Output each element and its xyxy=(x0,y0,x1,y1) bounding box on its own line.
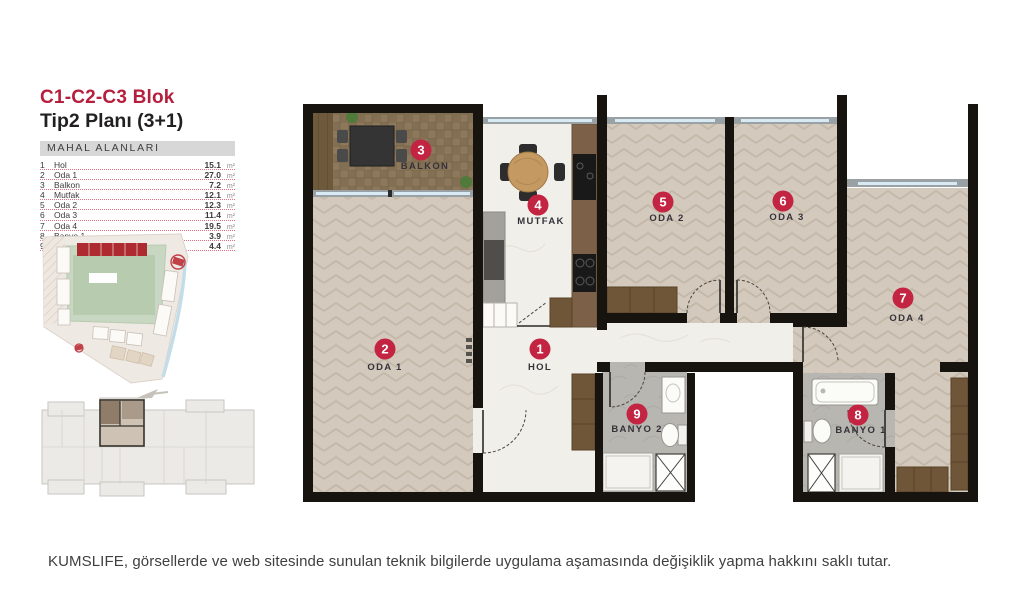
row-value: 4.4 xyxy=(209,242,221,250)
row-name: Oda 4 xyxy=(54,222,204,230)
kitchen-tall-cabinet xyxy=(550,298,572,327)
oda2-window xyxy=(607,117,725,124)
highlighted-block-row xyxy=(77,243,147,256)
toilet-tank xyxy=(678,425,687,445)
room-name: BANYO 2 xyxy=(611,424,662,435)
shower xyxy=(839,454,883,492)
room-number: 1 xyxy=(536,342,543,357)
row-name: Oda 1 xyxy=(54,171,204,179)
toilet-tank xyxy=(804,421,812,442)
hall-cabinet xyxy=(572,374,595,450)
site-plan-thumbnail xyxy=(35,231,207,392)
hall-arm-floor xyxy=(597,323,793,362)
row-value: 11.4 xyxy=(205,211,221,219)
row-value: 15.1 xyxy=(204,161,221,169)
room-number: 4 xyxy=(534,198,542,213)
row-unit: m² xyxy=(221,163,235,171)
table-row: 4Mutfak12.1m² xyxy=(40,190,235,200)
kitchen-window xyxy=(483,117,597,124)
row-value: 7.2 xyxy=(209,181,221,189)
room-number: 5 xyxy=(659,195,666,210)
plant-icon xyxy=(460,176,472,188)
row-no: 5 xyxy=(40,201,54,209)
pool xyxy=(89,273,117,283)
highlighted-unit xyxy=(100,400,144,446)
info-panel: C1-C2-C3 Blok Tip2 Planı (3+1) MAHAL ALA… xyxy=(40,87,235,251)
row-unit: m² xyxy=(221,183,235,191)
shower xyxy=(603,453,653,491)
row-name: Oda 3 xyxy=(54,211,205,219)
room-name: BANYO 1 xyxy=(835,425,886,436)
row-no: 3 xyxy=(40,181,54,189)
table-row: 6Oda 311.4m² xyxy=(40,210,235,220)
plan-type-title: Tip2 Planı (3+1) xyxy=(40,110,235,132)
row-unit: m² xyxy=(221,213,235,221)
row-value: 27.0 xyxy=(204,171,221,179)
apartment-floor-plan: 1 HOL 2 ODA 1 3 BALKON 4 MUTFAK 5 ODA 2 … xyxy=(300,90,995,515)
room-name: MUTFAK xyxy=(517,216,564,227)
oda2-wardrobe xyxy=(607,287,677,313)
fridge xyxy=(484,240,504,280)
toilet xyxy=(662,424,679,447)
table-row: 1Hol15.1m² xyxy=(40,160,235,170)
room-name: HOL xyxy=(528,362,552,373)
row-name: Mutfak xyxy=(54,191,204,199)
room-name: ODA 1 xyxy=(367,362,402,373)
room-number: 8 xyxy=(854,408,861,423)
row-name: Hol xyxy=(54,161,204,169)
disclaimer-text: KUMSLIFE, görsellerde ve web sitesinde s… xyxy=(48,553,891,570)
row-no: 7 xyxy=(40,222,54,230)
oda3-floor xyxy=(734,124,837,323)
room-name: ODA 4 xyxy=(889,313,924,324)
shaft xyxy=(808,454,835,492)
room-name: ODA 2 xyxy=(649,213,684,224)
balcony-wood-strip xyxy=(313,112,333,190)
row-unit: m² xyxy=(221,193,235,201)
row-no: 2 xyxy=(40,171,54,179)
row-no: 1 xyxy=(40,161,54,169)
toilet xyxy=(813,419,831,443)
oda4-wardrobe xyxy=(897,467,948,492)
row-value: 3.9 xyxy=(209,232,221,240)
block-title: C1-C2-C3 Blok xyxy=(40,87,235,108)
kitchen-counter-left xyxy=(483,212,505,303)
row-unit: m² xyxy=(221,244,235,252)
room-number: 3 xyxy=(417,143,424,158)
table-row: 2Oda 127.0m² xyxy=(40,170,235,180)
row-value: 12.1 xyxy=(204,191,221,199)
room-number: 6 xyxy=(779,194,786,209)
row-value: 12.3 xyxy=(204,201,221,209)
room-number: 7 xyxy=(899,291,906,306)
room-number: 2 xyxy=(381,342,388,357)
room-name: ODA 3 xyxy=(769,212,804,223)
row-unit: m² xyxy=(221,224,235,232)
row-no: 4 xyxy=(40,191,54,199)
kitchen-base-cabinets xyxy=(483,303,517,327)
table-row: 5Oda 212.3m² xyxy=(40,200,235,210)
room-name: BALKON xyxy=(401,161,449,172)
row-unit: m² xyxy=(221,234,235,242)
sink xyxy=(662,377,685,413)
shaft xyxy=(656,454,685,491)
table-row: 3Balkon7.2m² xyxy=(40,180,235,190)
oda1-floor xyxy=(313,190,483,492)
row-name: Balkon xyxy=(54,181,209,189)
row-name: Oda 2 xyxy=(54,201,204,209)
central-green-area xyxy=(66,245,166,324)
oda4-window xyxy=(847,179,968,187)
kitchen-counter-right xyxy=(572,124,597,327)
row-no: 6 xyxy=(40,211,54,219)
oda3-window xyxy=(734,117,837,124)
areas-table-header: MAHAL ALANLARI xyxy=(40,141,235,156)
row-value: 19.5 xyxy=(204,222,221,230)
balcony-sliding-door xyxy=(313,190,473,197)
floor-key-plan xyxy=(36,386,264,513)
row-unit: m² xyxy=(221,203,235,211)
table-row: 7Oda 419.5m² xyxy=(40,221,235,231)
room-number: 9 xyxy=(633,407,640,422)
row-unit: m² xyxy=(221,173,235,181)
